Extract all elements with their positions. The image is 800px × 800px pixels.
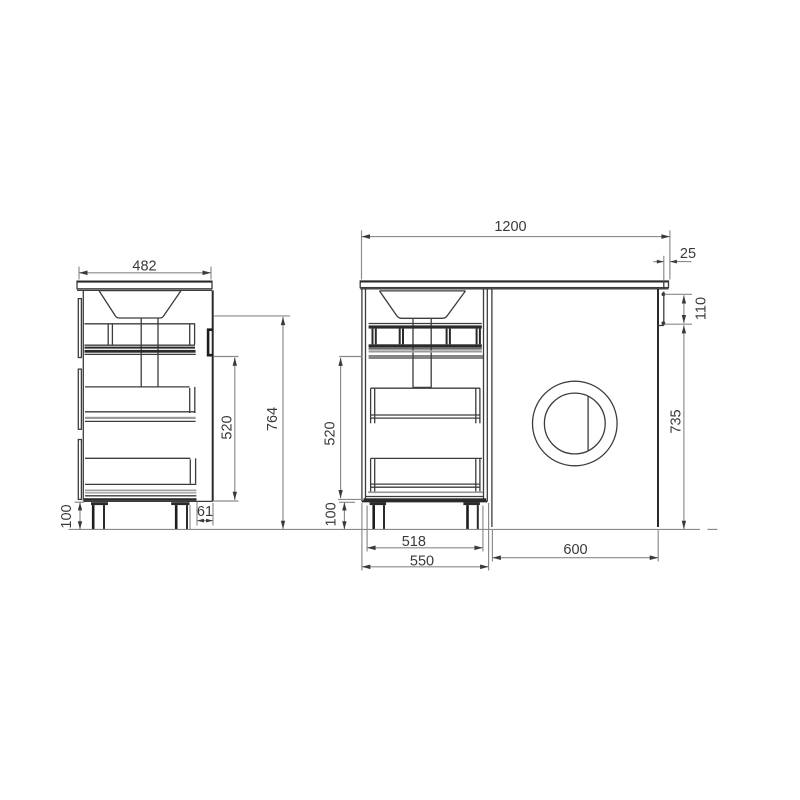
svg-text:482: 482 bbox=[132, 258, 156, 274]
svg-text:25: 25 bbox=[680, 246, 696, 262]
svg-text:518: 518 bbox=[402, 534, 426, 550]
svg-text:520: 520 bbox=[323, 421, 339, 445]
svg-text:61: 61 bbox=[197, 504, 213, 520]
svg-text:600: 600 bbox=[563, 542, 587, 558]
svg-text:110: 110 bbox=[694, 297, 710, 320]
svg-text:735: 735 bbox=[669, 409, 685, 433]
svg-text:1200: 1200 bbox=[494, 219, 526, 235]
svg-text:100: 100 bbox=[59, 504, 75, 528]
svg-text:100: 100 bbox=[324, 502, 340, 526]
svg-text:764: 764 bbox=[265, 407, 281, 431]
svg-text:520: 520 bbox=[220, 415, 236, 439]
svg-text:550: 550 bbox=[410, 554, 434, 570]
